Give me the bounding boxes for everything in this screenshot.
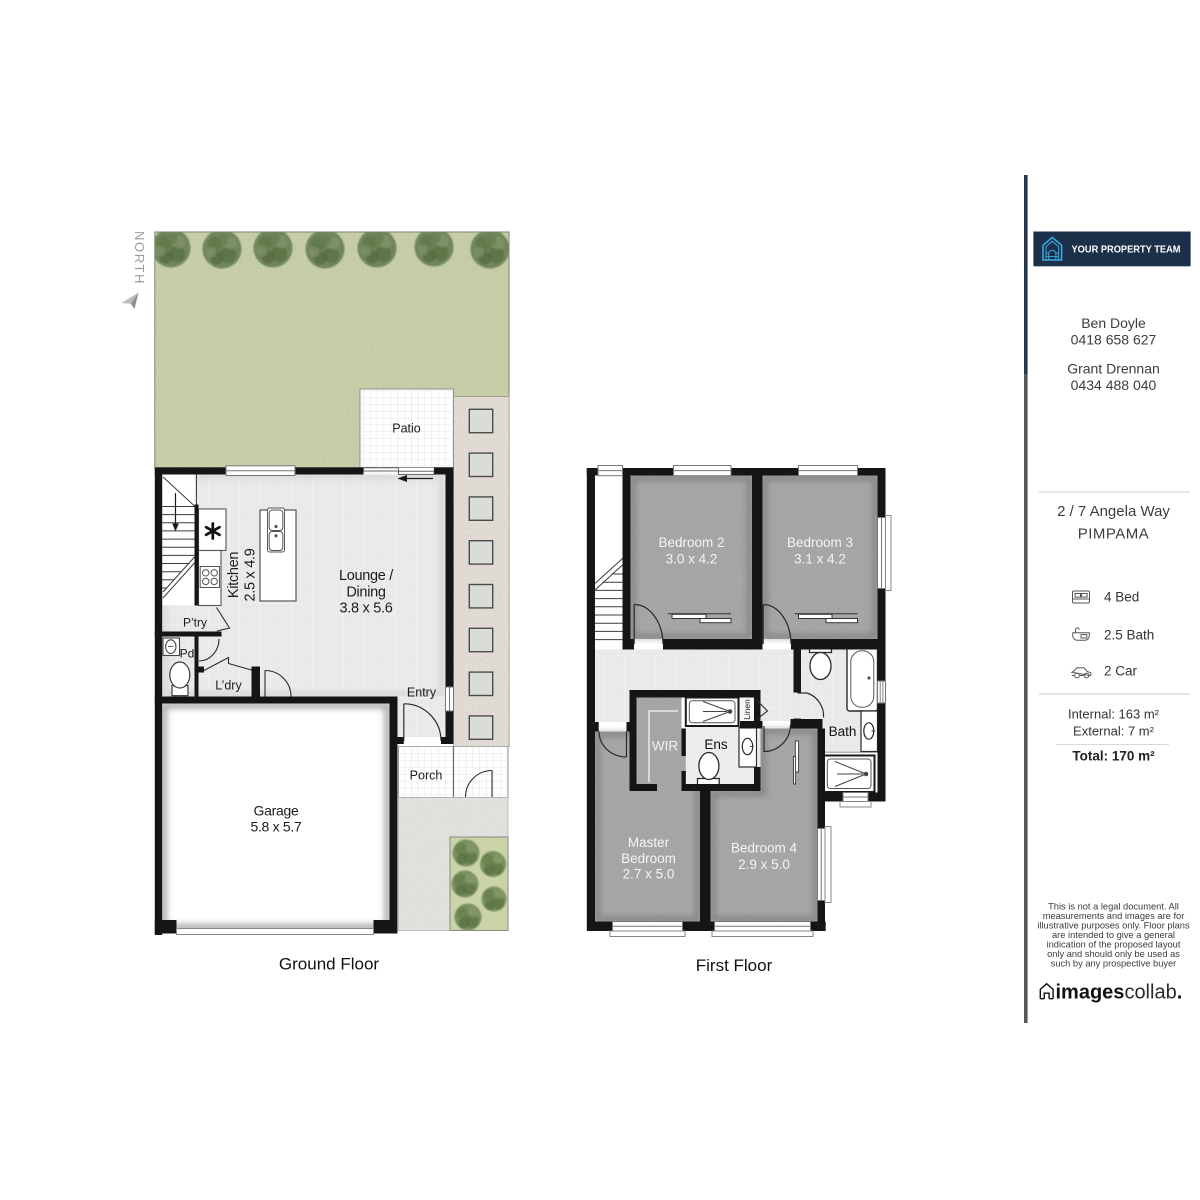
svg-text:This is not a legal document.: This is not a legal document. All: [1048, 902, 1179, 912]
svg-text:only and should only be used a: only and should only be used as: [1047, 949, 1180, 959]
svg-text:2 Car: 2 Car: [1104, 664, 1138, 679]
svg-text:PIMPAMA: PIMPAMA: [1078, 526, 1150, 543]
svg-text:4 Bed: 4 Bed: [1104, 590, 1139, 605]
svg-text:NORTH: NORTH: [132, 231, 147, 285]
svg-text:2 / 7 Angela Way: 2 / 7 Angela Way: [1057, 503, 1170, 520]
svg-text:YOUR PROPERTY TEAM: YOUR PROPERTY TEAM: [1072, 244, 1181, 256]
svg-text:Lounge /: Lounge /: [339, 568, 394, 584]
svg-text:5.8 x 5.7: 5.8 x 5.7: [250, 819, 302, 835]
svg-text:Dining: Dining: [346, 585, 386, 601]
svg-text:are intended to give a general: are intended to give a general: [1052, 930, 1175, 940]
svg-text:2.7 x 5.0: 2.7 x 5.0: [623, 867, 675, 882]
svg-text:0434 488 040: 0434 488 040: [1071, 377, 1157, 393]
svg-text:WIR: WIR: [652, 739, 678, 754]
svg-text:indication of the proposed lay: indication of the proposed layout: [1047, 940, 1181, 950]
svg-text:3.1 x 4.2: 3.1 x 4.2: [794, 552, 846, 567]
svg-text:such by any prospective buyer: such by any prospective buyer: [1051, 959, 1177, 969]
svg-text:P’try: P’try: [183, 616, 207, 630]
svg-text:2.9 x 5.0: 2.9 x 5.0: [738, 857, 790, 872]
svg-text:2.5 Bath: 2.5 Bath: [1104, 628, 1154, 643]
svg-text:Bedroom: Bedroom: [621, 851, 676, 866]
svg-text:measurements and images are fo: measurements and images are for: [1043, 911, 1185, 921]
svg-text:L’dry: L’dry: [215, 679, 242, 693]
svg-text:Pdr: Pdr: [180, 647, 199, 661]
svg-text:Bedroom 2: Bedroom 2: [658, 535, 724, 550]
svg-text:illustrative purposes only. Fl: illustrative purposes only. Floor plans: [1037, 921, 1190, 931]
svg-text:imagescollab.: imagescollab.: [1056, 982, 1183, 1004]
svg-text:External: 7 m²: External: 7 m²: [1073, 724, 1155, 739]
svg-text:Ens: Ens: [704, 737, 728, 752]
svg-text:Ben Doyle: Ben Doyle: [1081, 315, 1146, 331]
svg-text:Grant Drennan: Grant Drennan: [1067, 361, 1160, 377]
svg-text:0418 658 627: 0418 658 627: [1071, 332, 1157, 348]
svg-text:Garage: Garage: [254, 803, 299, 819]
svg-text:Internal: 163 m²: Internal: 163 m²: [1068, 707, 1160, 722]
svg-text:Master: Master: [628, 835, 670, 850]
svg-text:Kitchen: Kitchen: [226, 552, 242, 598]
svg-text:Linen: Linen: [742, 699, 752, 720]
svg-text:3.0 x 4.2: 3.0 x 4.2: [666, 552, 718, 567]
svg-text:Ground Floor: Ground Floor: [279, 955, 379, 974]
svg-text:Patio: Patio: [392, 422, 421, 436]
svg-text:2.5 x 4.9: 2.5 x 4.9: [243, 548, 259, 601]
svg-text:Bath: Bath: [829, 724, 857, 739]
svg-text:Porch: Porch: [410, 769, 443, 783]
svg-text:Entry: Entry: [407, 686, 437, 700]
svg-text:3.8 x 5.6: 3.8 x 5.6: [340, 601, 393, 617]
svg-text:Bedroom 3: Bedroom 3: [787, 535, 853, 550]
svg-text:First Floor: First Floor: [696, 956, 773, 975]
svg-text:Bedroom 4: Bedroom 4: [731, 841, 798, 856]
svg-text:Total: 170 m²: Total: 170 m²: [1072, 749, 1155, 764]
